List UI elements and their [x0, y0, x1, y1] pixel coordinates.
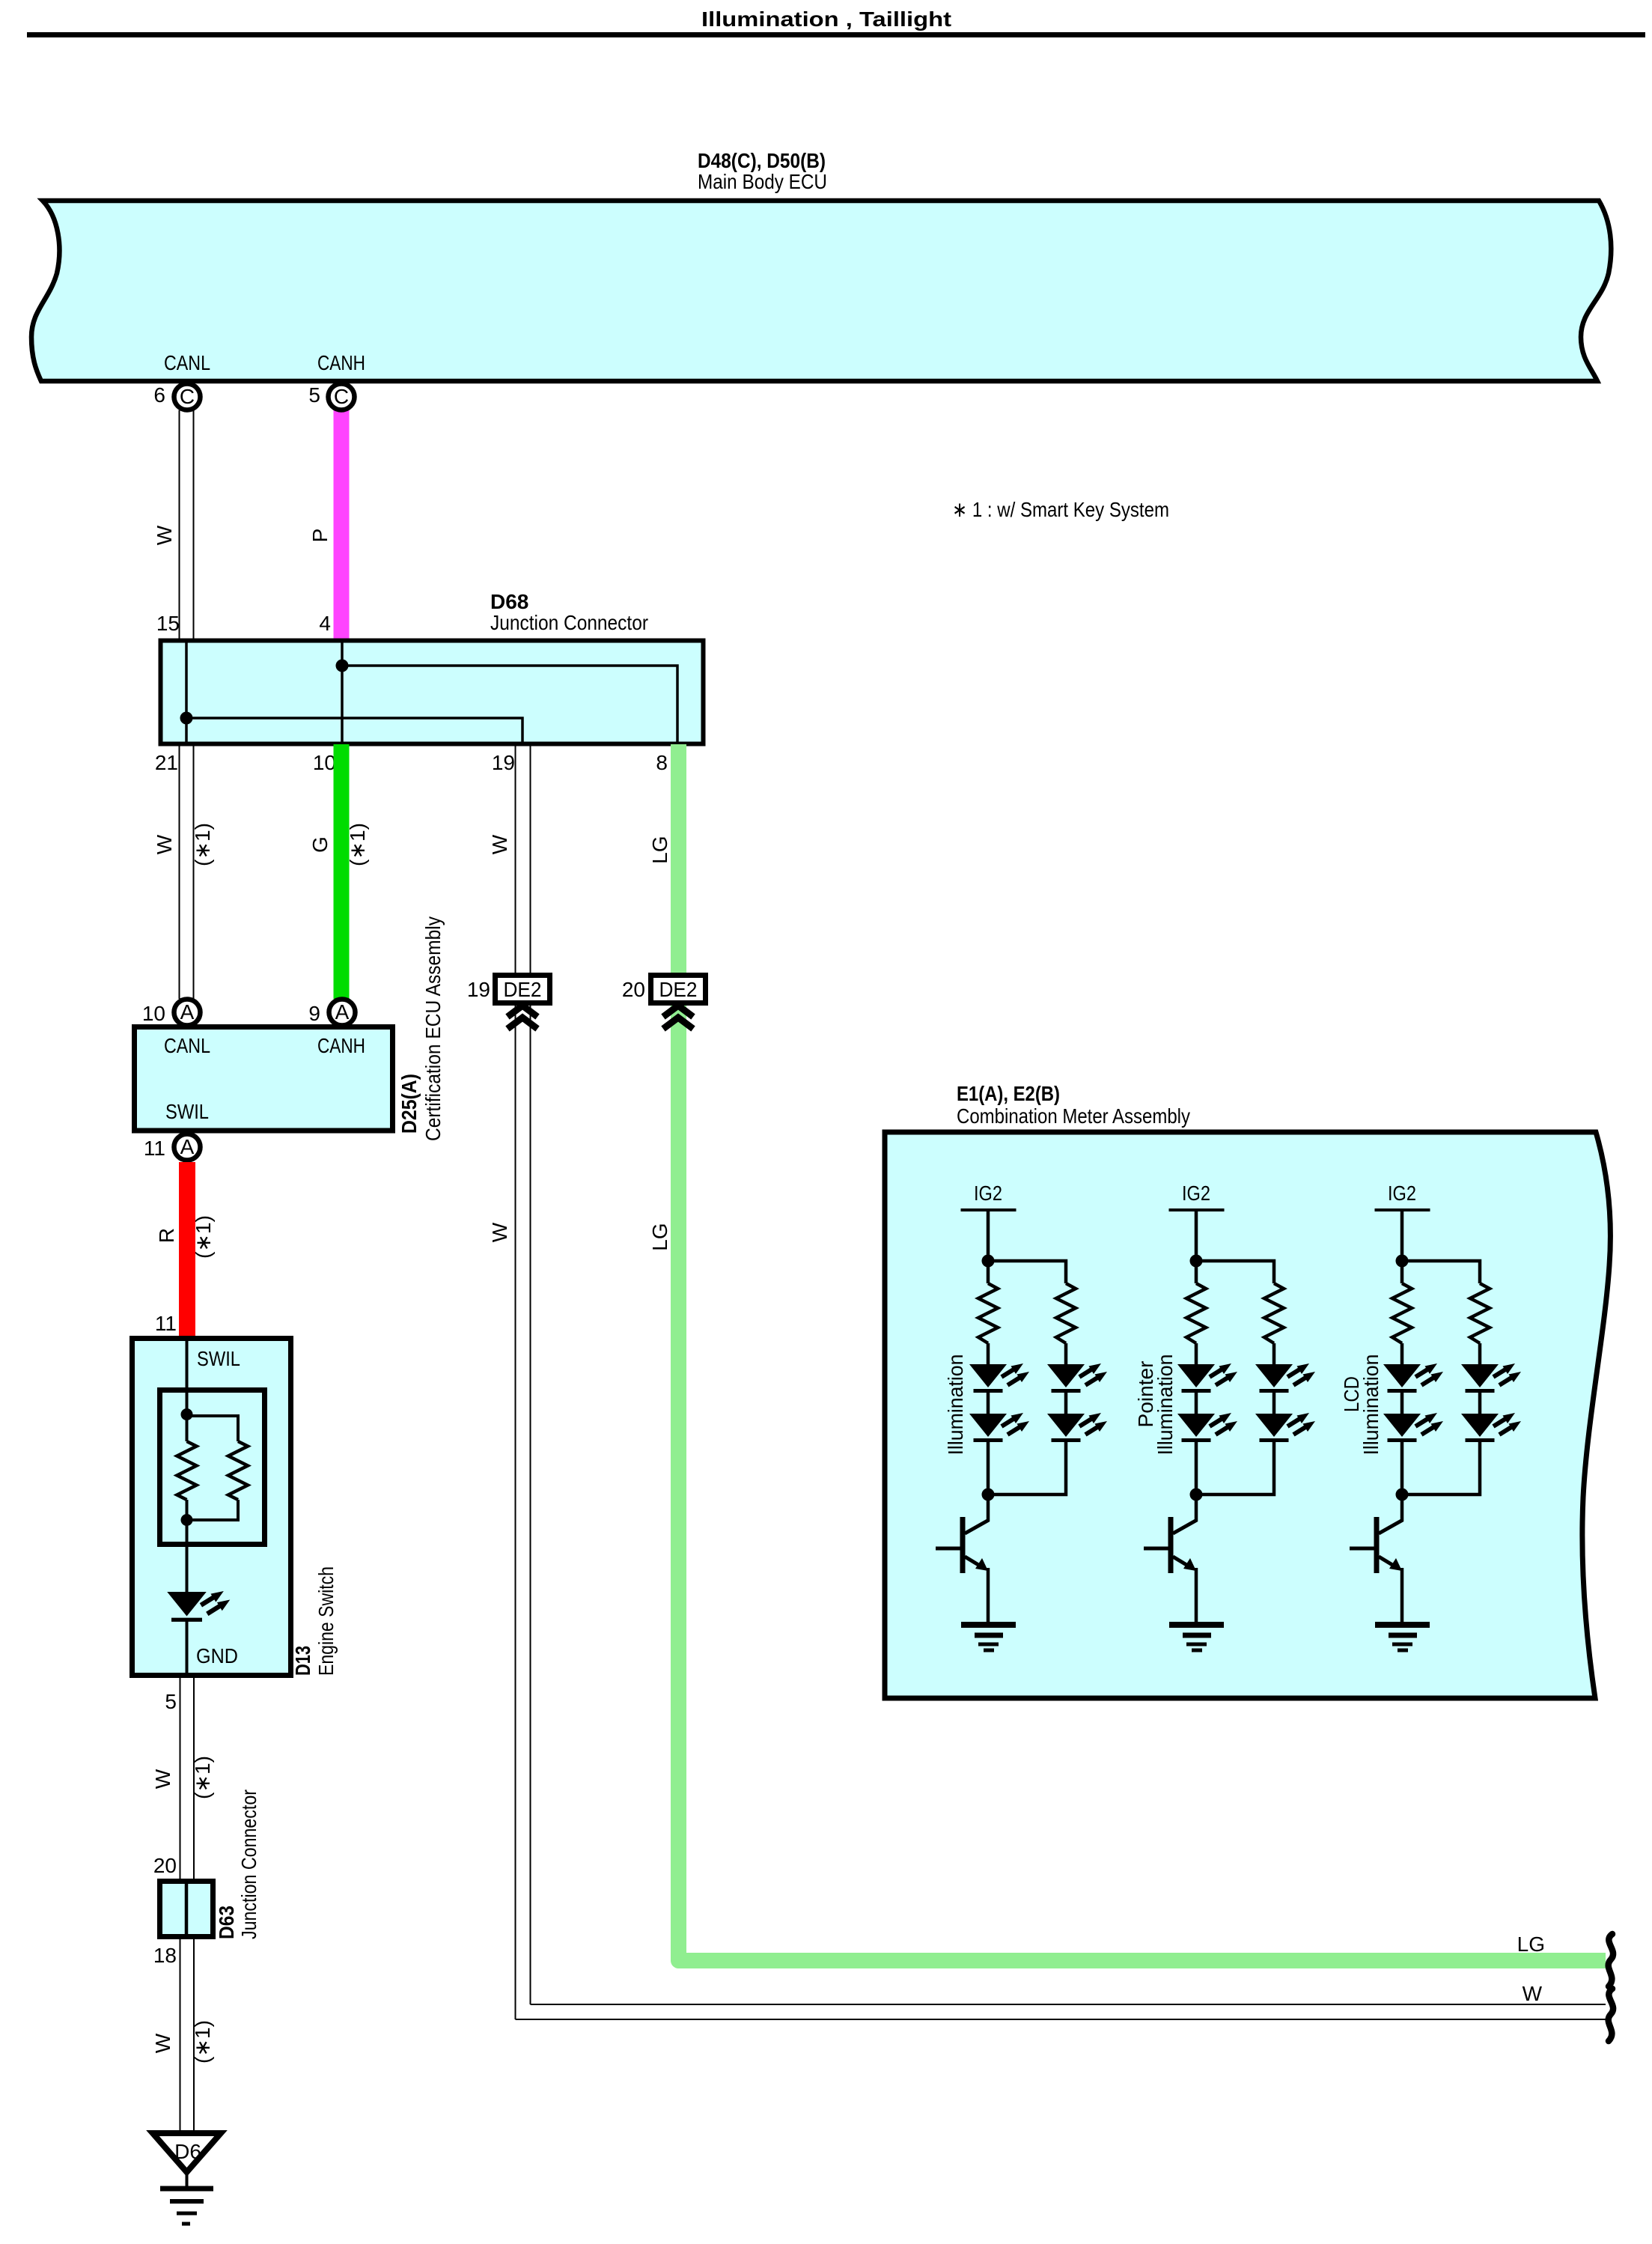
- svg-text:A: A: [180, 1135, 195, 1158]
- svg-text:P: P: [308, 529, 332, 543]
- svg-text:Illumination: Illumination: [1359, 1354, 1383, 1456]
- svg-text:Certification ECU Assembly: Certification ECU Assembly: [421, 916, 445, 1141]
- svg-text:W: W: [1523, 1982, 1543, 2005]
- svg-text:10: 10: [313, 751, 336, 774]
- svg-text:W: W: [151, 1769, 174, 1789]
- svg-text:(∗1): (∗1): [191, 1756, 214, 1799]
- svg-text:W: W: [151, 2033, 174, 2053]
- svg-text:Junction Connector: Junction Connector: [237, 1790, 260, 1939]
- svg-text:W: W: [153, 834, 176, 854]
- svg-text:W: W: [488, 1222, 511, 1242]
- svg-text:10: 10: [142, 1002, 165, 1025]
- svg-text:D48(C), D50(B): D48(C), D50(B): [698, 149, 826, 172]
- svg-text:6: 6: [153, 383, 165, 407]
- svg-text:CANL: CANL: [164, 351, 210, 374]
- svg-text:D63: D63: [215, 1906, 238, 1939]
- svg-text:Engine Switch: Engine Switch: [314, 1566, 338, 1676]
- svg-text:D13: D13: [291, 1646, 314, 1676]
- svg-text:Junction Connector: Junction Connector: [490, 611, 648, 634]
- svg-text:SWIL: SWIL: [197, 1347, 240, 1370]
- svg-text:9: 9: [308, 1002, 320, 1025]
- svg-text:(∗1): (∗1): [346, 823, 369, 866]
- svg-text:Combination Meter Assembly: Combination Meter Assembly: [957, 1104, 1190, 1128]
- svg-text:A: A: [335, 1000, 350, 1024]
- svg-text:21: 21: [155, 751, 178, 774]
- svg-text:LG: LG: [648, 1223, 671, 1250]
- svg-text:19: 19: [467, 978, 490, 1001]
- svg-text:W: W: [488, 834, 511, 854]
- svg-text:19: 19: [492, 751, 515, 774]
- svg-text:R: R: [155, 1228, 178, 1243]
- svg-text:(∗1): (∗1): [191, 823, 214, 866]
- svg-text:5: 5: [308, 383, 320, 407]
- svg-text:5: 5: [165, 1690, 177, 1713]
- svg-text:SWIL: SWIL: [165, 1100, 209, 1123]
- svg-text:CANL: CANL: [164, 1034, 210, 1057]
- svg-text:(∗1): (∗1): [191, 2020, 214, 2064]
- svg-text:Illumination: Illumination: [944, 1354, 967, 1456]
- svg-text:W: W: [153, 525, 176, 545]
- svg-text:4: 4: [319, 612, 331, 635]
- svg-text:LG: LG: [648, 836, 671, 863]
- svg-text:11: 11: [144, 1137, 165, 1160]
- svg-text:IG2: IG2: [1182, 1182, 1210, 1205]
- svg-text:G: G: [308, 836, 332, 853]
- svg-text:(∗1): (∗1): [192, 1215, 215, 1259]
- svg-text:DE2: DE2: [659, 978, 698, 1001]
- svg-text:C: C: [334, 385, 349, 408]
- svg-text:CANH: CANH: [317, 351, 365, 374]
- svg-text:18: 18: [153, 1944, 177, 1967]
- svg-text:8: 8: [656, 751, 668, 774]
- svg-text:D6: D6: [174, 2140, 201, 2163]
- svg-text:LG: LG: [1517, 1933, 1545, 1956]
- svg-text:IG2: IG2: [974, 1182, 1002, 1205]
- svg-text:11: 11: [155, 1312, 177, 1335]
- svg-text:C: C: [180, 385, 195, 408]
- svg-text:Main Body ECU: Main Body ECU: [698, 170, 827, 193]
- svg-text:E1(A), E2(B): E1(A), E2(B): [957, 1082, 1060, 1105]
- svg-text:D68: D68: [490, 590, 528, 613]
- svg-text:CANH: CANH: [317, 1034, 365, 1057]
- svg-text:Illumination , Taillight: Illumination , Taillight: [701, 7, 951, 31]
- svg-text:15: 15: [156, 612, 180, 635]
- svg-text:IG2: IG2: [1388, 1182, 1416, 1205]
- svg-text:A: A: [180, 1000, 195, 1024]
- svg-text:D25(A): D25(A): [397, 1074, 421, 1134]
- svg-text:20: 20: [153, 1854, 177, 1877]
- svg-text:DE2: DE2: [504, 978, 542, 1001]
- svg-text:GND: GND: [196, 1644, 238, 1667]
- svg-text:Illumination: Illumination: [1153, 1354, 1177, 1456]
- svg-text:∗ 1 : w/ Smart Key System: ∗ 1 : w/ Smart Key System: [952, 498, 1169, 521]
- svg-text:20: 20: [622, 978, 645, 1001]
